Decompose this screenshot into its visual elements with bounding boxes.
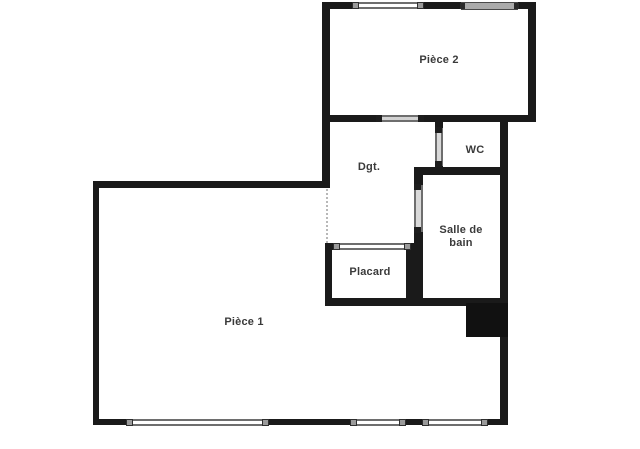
door-cap-icon	[414, 227, 421, 233]
window-cap-icon	[481, 419, 488, 426]
window-cap-icon	[262, 419, 269, 426]
window-piece1-b-icon	[351, 419, 405, 426]
window-cap-icon	[352, 2, 359, 9]
window-cap-icon	[417, 2, 424, 9]
window-cap-icon	[460, 3, 465, 9]
wall-wc-bottom	[414, 167, 508, 175]
wall-placard-bathroom	[406, 243, 423, 306]
floor-plan: Pièce 2 WC Dgt. Salle de bain Placard Pi…	[0, 0, 640, 449]
door-placard-icon	[334, 243, 410, 250]
label-wc: WC	[466, 144, 485, 156]
door-cap-icon	[414, 184, 421, 190]
label-placard: Placard	[349, 266, 390, 278]
window-piece2-right-icon	[461, 2, 518, 10]
duct-block	[466, 303, 508, 337]
window-cap-icon	[350, 419, 357, 426]
window-cap-icon	[399, 419, 406, 426]
door-cap-icon	[435, 127, 442, 133]
door-wc-icon	[435, 128, 443, 166]
door-cap-icon	[376, 115, 382, 122]
wall-piece2-left	[322, 2, 330, 122]
door-cap-icon	[418, 115, 424, 122]
label-piece-1: Pièce 1	[224, 316, 263, 328]
opening-piece1-degagement	[326, 189, 328, 243]
wall-placard-left	[325, 243, 332, 306]
door-cap-icon	[333, 243, 340, 250]
door-piece2-icon	[377, 115, 423, 122]
label-salle-de-bain: Salle de bain	[432, 224, 490, 250]
window-piece2-left-icon	[353, 2, 423, 9]
wall-piece2-right	[528, 2, 536, 122]
window-piece1-c-icon	[423, 419, 487, 426]
wall-degagement-left	[322, 122, 330, 188]
window-cap-icon	[126, 419, 133, 426]
window-piece1-a-icon	[127, 419, 268, 426]
window-cap-icon	[514, 3, 519, 9]
door-cap-icon	[404, 243, 411, 250]
label-piece-2: Pièce 2	[419, 54, 458, 66]
wall-piece1-left	[93, 181, 99, 425]
door-bathroom-icon	[414, 185, 423, 232]
label-degagement: Dgt.	[358, 161, 380, 173]
wall-piece1-top	[93, 181, 330, 188]
window-cap-icon	[422, 419, 429, 426]
wall-right-outer	[500, 115, 508, 425]
